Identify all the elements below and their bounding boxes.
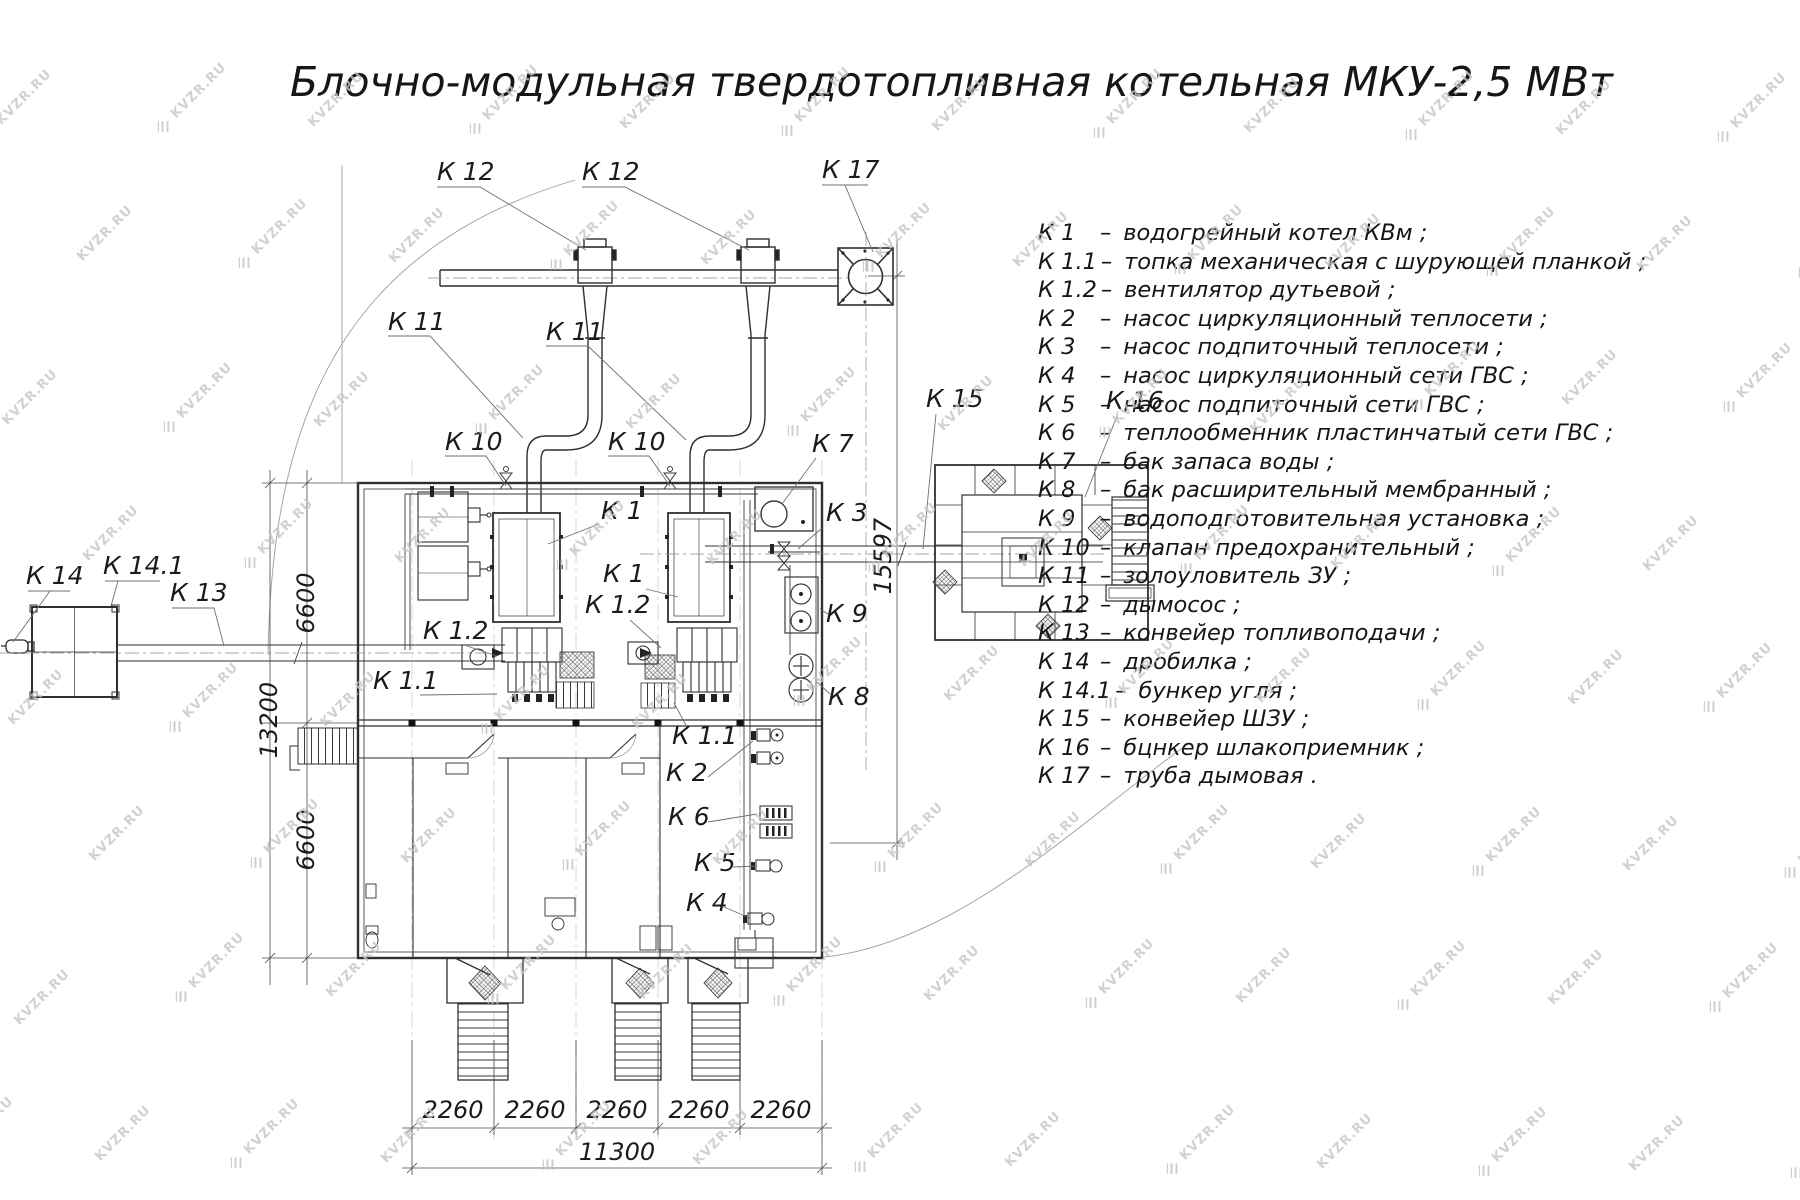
legend-item-separator: – xyxy=(1100,419,1111,448)
legend-item-code: К 14 xyxy=(1038,648,1096,677)
entrance-porches xyxy=(447,958,748,1080)
legend-item-separator: – xyxy=(1100,391,1111,420)
legend-item-desc: конвейер ШЗУ ; xyxy=(1123,705,1309,734)
legend-item: К 3 – насос подпиточный теплосети ; xyxy=(1038,333,1646,362)
legend-item-desc: золоуловитель ЗУ ; xyxy=(1123,562,1351,591)
legend-item-code: К 2 xyxy=(1038,305,1096,334)
legend-item: К 8 – бак расширительный мембранный ; xyxy=(1038,476,1646,505)
legend-item: К 5 – насос подпиточный сети ГВС ; xyxy=(1038,391,1646,420)
callout-label: К 1.1 xyxy=(672,721,737,750)
legend-item-code: К 14.1 xyxy=(1038,677,1111,706)
legend-item-desc: дробилка ; xyxy=(1123,648,1252,677)
dimension-label: 11300 xyxy=(579,1138,655,1166)
legend-item-code: К 3 xyxy=(1038,333,1096,362)
legend-item-separator: – xyxy=(1100,476,1111,505)
stoker-1 xyxy=(502,628,562,702)
legend-item-desc: водоподготовительная установка ; xyxy=(1123,505,1544,534)
boiler-1 xyxy=(490,513,563,622)
legend-item-code: К 8 xyxy=(1038,476,1096,505)
callout-label: К 7 xyxy=(812,429,854,458)
callout-label: К 5 xyxy=(694,848,736,877)
legend-item-desc: теплообменник пластинчатый сети ГВС ; xyxy=(1123,419,1613,448)
callout-label: К 1.2 xyxy=(585,590,650,619)
dimension-label: 6600 xyxy=(292,572,320,633)
legend-item-separator: – xyxy=(1100,534,1111,563)
legend-item-desc: бак расширительный мембранный ; xyxy=(1123,476,1551,505)
dimension-label: 2260 xyxy=(586,1096,647,1124)
legend-item-desc: насос подпиточный теплосети ; xyxy=(1123,333,1503,362)
legend-item-desc: бак запаса воды ; xyxy=(1123,448,1334,477)
legend-item: К 1.2 – вентилятор дутьевой ; xyxy=(1038,276,1646,305)
legend-item-desc: бцнкер шлакоприемник ; xyxy=(1123,734,1424,763)
legend-item-separator: – xyxy=(1100,505,1111,534)
legend-item-separator: – xyxy=(1100,305,1111,334)
legend-item-separator: – xyxy=(1101,276,1112,305)
stoker-2 xyxy=(677,628,737,702)
legend-item: К 14.1 – бункер угля ; xyxy=(1038,677,1646,706)
callout-label: К 11 xyxy=(388,307,446,336)
legend-item-code: К 17 xyxy=(1038,762,1096,791)
legend-item-desc: конвейер топливоподачи ; xyxy=(1123,619,1440,648)
legend-item: К 9 – водоподготовительная установка ; xyxy=(1038,505,1646,534)
dimension-label: 2260 xyxy=(668,1096,729,1124)
callout-label: К 1.2 xyxy=(423,616,488,645)
legend-item-code: К 1.1 xyxy=(1038,248,1097,277)
legend-item-separator: – xyxy=(1100,648,1111,677)
heat-exchangers xyxy=(760,806,792,838)
legend-item: К 1 – водогрейный котел КВм ; xyxy=(1038,219,1646,248)
legend-item: К 7 – бак запаса воды ; xyxy=(1038,448,1646,477)
drain-pit xyxy=(735,930,773,968)
legend-item: К 6 – теплообменник пластинчатый сети ГВ… xyxy=(1038,419,1646,448)
legend-item-separator: – xyxy=(1100,362,1111,391)
legend-item-code: К 1 xyxy=(1038,219,1096,248)
callout-label: К 14.1 xyxy=(103,551,184,580)
dimension-label: 15597 xyxy=(869,517,897,594)
water-tank xyxy=(755,487,813,531)
boiler-2 xyxy=(665,513,733,622)
hws-pumps xyxy=(743,860,782,925)
smoke-exhauster-2 xyxy=(737,239,779,283)
legend-item-desc: вентилятор дутьевой ; xyxy=(1124,276,1395,305)
callout-label: К 8 xyxy=(828,682,870,711)
legend-item-separator: – xyxy=(1100,333,1111,362)
legend-item-desc: насос циркуляционный теплосети ; xyxy=(1123,305,1547,334)
callout-label: К 11 xyxy=(546,317,604,346)
boilers xyxy=(418,492,737,708)
legend-item: К 1.1 – топка механическая с шурующей пл… xyxy=(1038,248,1646,277)
callout-label: К 3 xyxy=(826,498,868,527)
legend-item: К 16 – бцнкер шлакоприемник ; xyxy=(1038,734,1646,763)
building xyxy=(290,483,822,1080)
callout-label: К 1 xyxy=(603,559,645,588)
fuel-supply-line xyxy=(0,605,652,699)
legend-item-code: К 9 xyxy=(1038,505,1096,534)
legend-item-code: К 13 xyxy=(1038,619,1096,648)
legend-item-desc: насос циркуляционный сети ГВС ; xyxy=(1123,362,1528,391)
legend-item: К 12 – дымосос ; xyxy=(1038,591,1646,620)
legend-item-separator: – xyxy=(1100,705,1111,734)
legend-item-desc: топка механическая с шурующей планкой ; xyxy=(1124,248,1646,277)
callout-label: К 10 xyxy=(608,427,666,456)
legend-item-code: К 4 xyxy=(1038,362,1096,391)
legend-item-code: К 5 xyxy=(1038,391,1096,420)
legend-item-code: К 15 xyxy=(1038,705,1096,734)
legend-item-separator: – xyxy=(1100,219,1111,248)
legend-item-separator: – xyxy=(1100,762,1111,791)
callout-label: К 1.1 xyxy=(373,666,438,695)
legend-item-desc: бункер угля ; xyxy=(1138,677,1297,706)
legend-item-separator: – xyxy=(1100,591,1111,620)
dimension-label: 2260 xyxy=(504,1096,565,1124)
legend-item-separator: – xyxy=(1100,619,1111,648)
legend-item-separator: – xyxy=(1100,448,1111,477)
cabinets xyxy=(418,492,491,600)
legend-item: К 4 – насос циркуляционный сети ГВС ; xyxy=(1038,362,1646,391)
callout-label: К 6 xyxy=(668,802,710,831)
legend-item: К 10 – клапан предохранительный ; xyxy=(1038,534,1646,563)
drawing-sheet: Блочно-модульная твердотопливная котельн… xyxy=(0,0,1800,1200)
legend-item: К 2 – насос циркуляционный теплосети ; xyxy=(1038,305,1646,334)
legend-item-code: К 12 xyxy=(1038,591,1096,620)
legend-item-separator: – xyxy=(1115,677,1126,706)
legend-item: К 13 – конвейер топливоподачи ; xyxy=(1038,619,1646,648)
expansion-tanks xyxy=(789,654,813,702)
callout-label: К 15 xyxy=(926,384,984,413)
legend-item: К 14 – дробилка ; xyxy=(1038,648,1646,677)
legend-item-desc: дымосос ; xyxy=(1123,591,1240,620)
room-partitions xyxy=(358,723,660,958)
drawing-title: Блочно-модульная твердотопливная котельн… xyxy=(290,58,1460,106)
legend-list: К 1 – водогрейный котел КВм ; К 1.1 – то… xyxy=(1038,219,1646,791)
callout-label: К 4 xyxy=(686,888,728,917)
draft-fan-1 xyxy=(462,645,494,669)
legend-item-code: К 16 xyxy=(1038,734,1096,763)
flue-ducts xyxy=(428,239,852,513)
left-stairs xyxy=(290,728,358,770)
dimension-label: 6600 xyxy=(292,809,320,870)
dimension-label: 2260 xyxy=(422,1096,483,1124)
legend-item-desc: клапан предохранительный ; xyxy=(1123,534,1474,563)
dimension-label: 13200 xyxy=(255,682,283,758)
callout-label: К 9 xyxy=(826,599,868,628)
callout-label: К 1 xyxy=(601,496,643,525)
legend-item-code: К 6 xyxy=(1038,419,1096,448)
legend-item-code: К 10 xyxy=(1038,534,1096,563)
callout-label: К 12 xyxy=(582,157,640,186)
dimension-label: 2260 xyxy=(750,1096,811,1124)
legend-item-code: К 1.2 xyxy=(1038,276,1097,305)
callout-label: К 13 xyxy=(170,578,228,607)
legend-item-code: К 11 xyxy=(1038,562,1096,591)
legend-item-separator: – xyxy=(1101,248,1112,277)
legend-item-separator: – xyxy=(1100,562,1111,591)
legend-item: К 17 – труба дымовая . xyxy=(1038,762,1646,791)
legend-item: К 11 – золоуловитель ЗУ ; xyxy=(1038,562,1646,591)
legend-item-separator: – xyxy=(1100,734,1111,763)
legend-item-desc: насос подпиточный сети ГВС ; xyxy=(1123,391,1484,420)
callout-label: К 10 xyxy=(445,427,503,456)
smoke-exhauster-1 xyxy=(574,239,616,283)
legend-item-code: К 7 xyxy=(1038,448,1096,477)
callout-label: К 12 xyxy=(437,157,495,186)
legend-item: К 15 – конвейер ШЗУ ; xyxy=(1038,705,1646,734)
callout-label: К 14 xyxy=(26,561,84,590)
callout-label: К 17 xyxy=(822,155,880,184)
legend-item-desc: труба дымовая . xyxy=(1123,762,1317,791)
legend-item-desc: водогрейный котел КВм ; xyxy=(1123,219,1427,248)
circulation-pumps xyxy=(751,729,783,764)
callout-label: К 2 xyxy=(666,758,708,787)
